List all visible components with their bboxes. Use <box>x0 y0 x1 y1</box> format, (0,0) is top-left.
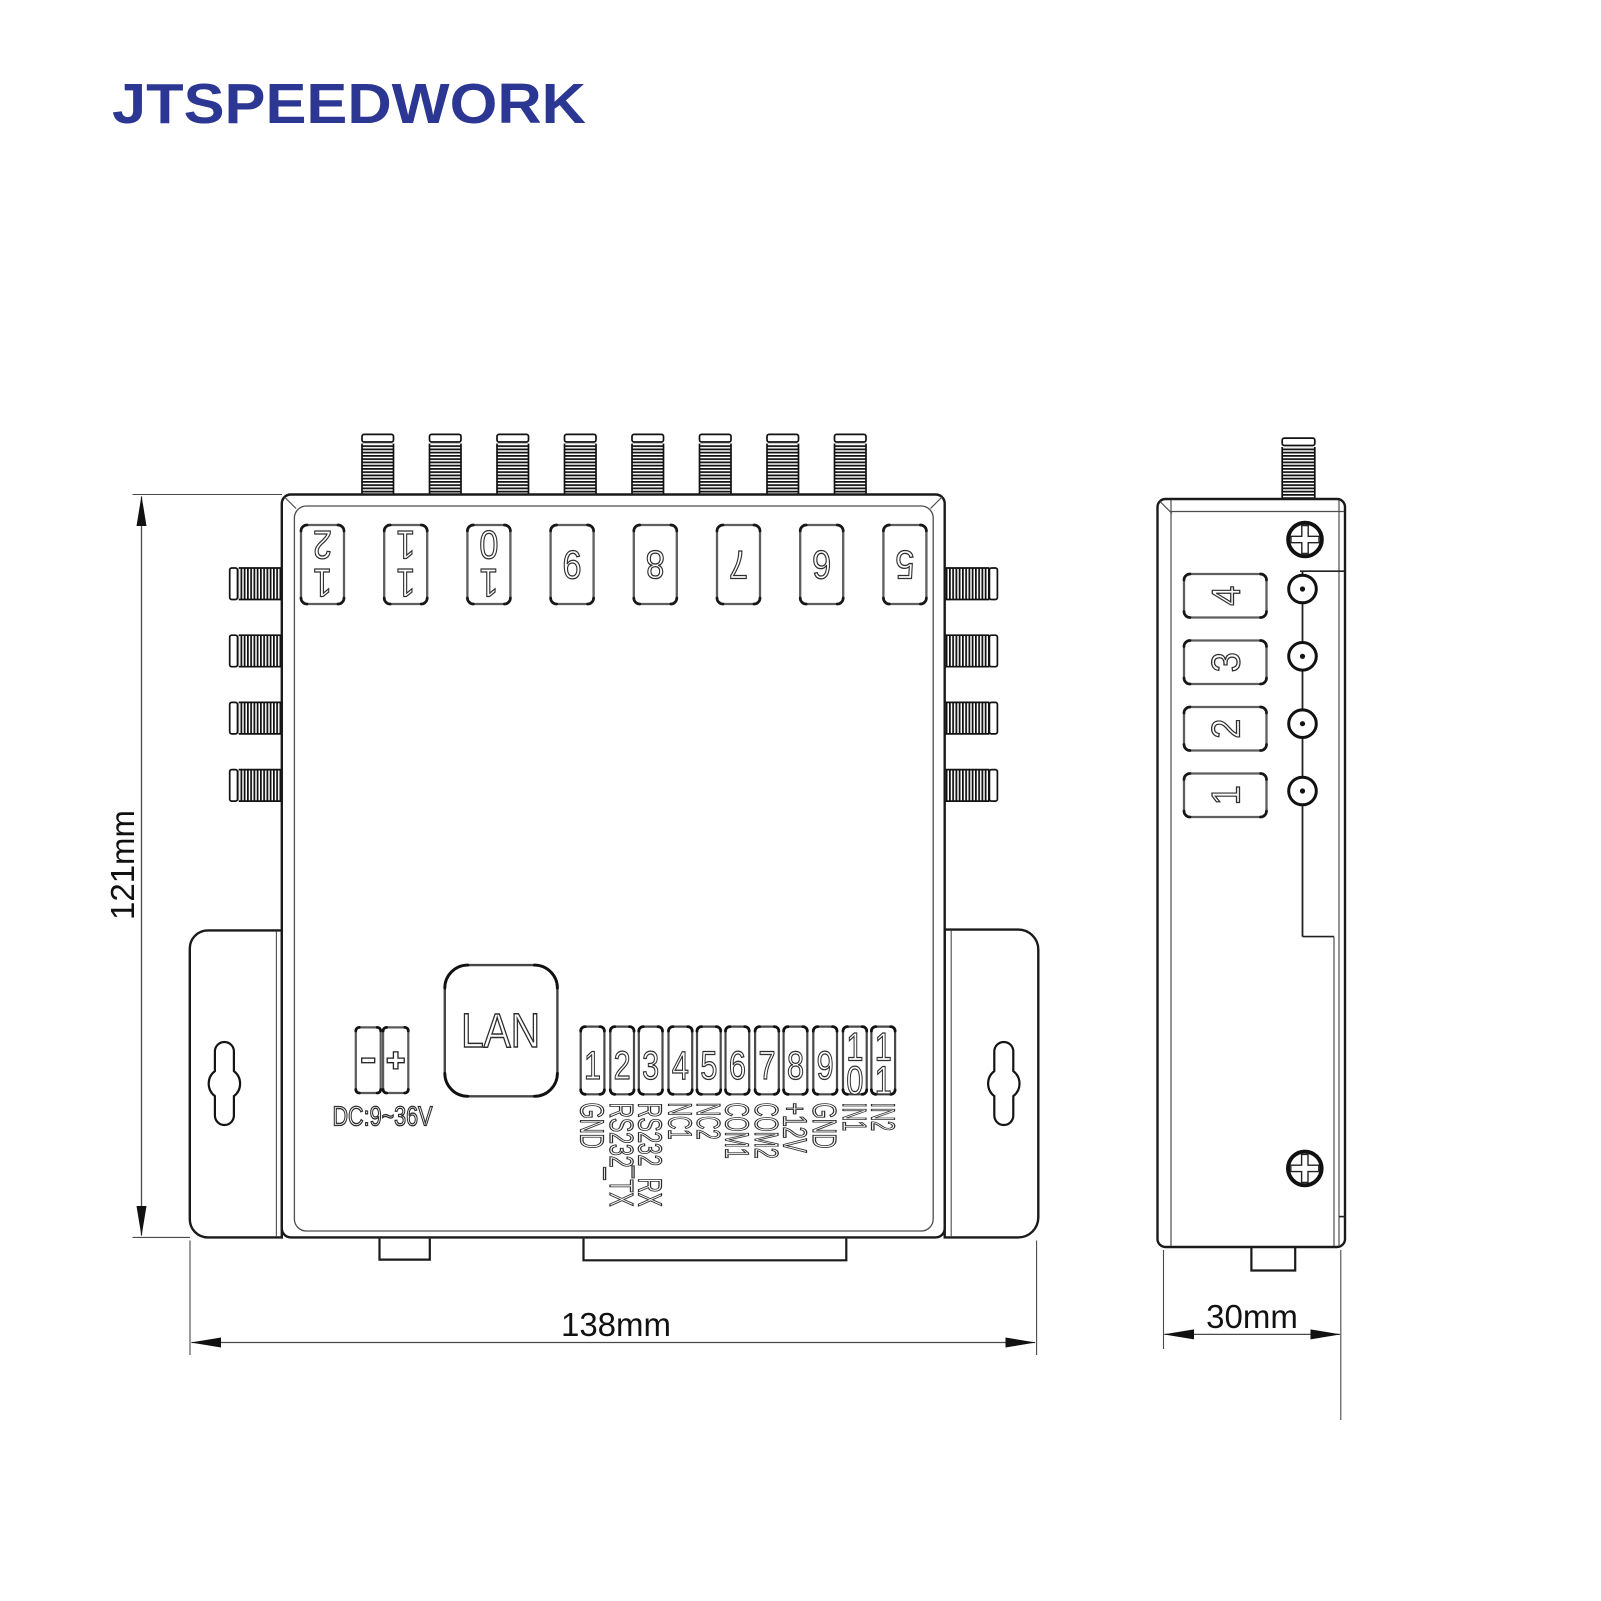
svg-text:4: 4 <box>672 1044 689 1088</box>
svg-text:1: 1 <box>584 1044 601 1088</box>
svg-text:121mm: 121mm <box>104 810 141 920</box>
svg-text:9: 9 <box>563 542 582 586</box>
svg-text:11: 11 <box>875 1026 892 1104</box>
svg-text:6: 6 <box>812 542 831 586</box>
svg-text:DC:9~36V: DC:9~36V <box>333 1100 433 1131</box>
svg-text:8: 8 <box>646 542 665 586</box>
svg-text:1: 1 <box>1205 785 1249 805</box>
svg-text:3: 3 <box>1205 652 1249 672</box>
svg-text:2: 2 <box>1205 719 1249 739</box>
svg-text:3: 3 <box>642 1044 659 1088</box>
svg-text:10: 10 <box>479 522 498 604</box>
svg-text:2: 2 <box>614 1044 631 1088</box>
svg-text:7: 7 <box>729 542 748 586</box>
svg-text:JTSPEEDWORK: JTSPEEDWORK <box>112 72 586 136</box>
svg-text:4: 4 <box>1205 586 1249 606</box>
svg-text:LAN: LAN <box>461 1005 540 1058</box>
svg-text:8: 8 <box>787 1044 804 1088</box>
svg-text:12: 12 <box>313 522 332 604</box>
svg-text:5: 5 <box>700 1044 717 1088</box>
svg-text:IN2: IN2 <box>864 1103 901 1132</box>
svg-text:138mm: 138mm <box>561 1306 671 1343</box>
svg-text:11: 11 <box>396 522 415 604</box>
svg-text:10: 10 <box>846 1026 863 1104</box>
svg-text:7: 7 <box>758 1044 775 1088</box>
svg-text:30mm: 30mm <box>1206 1298 1298 1335</box>
svg-text:9: 9 <box>817 1044 834 1088</box>
svg-text:5: 5 <box>895 542 914 586</box>
svg-text:6: 6 <box>729 1044 746 1088</box>
